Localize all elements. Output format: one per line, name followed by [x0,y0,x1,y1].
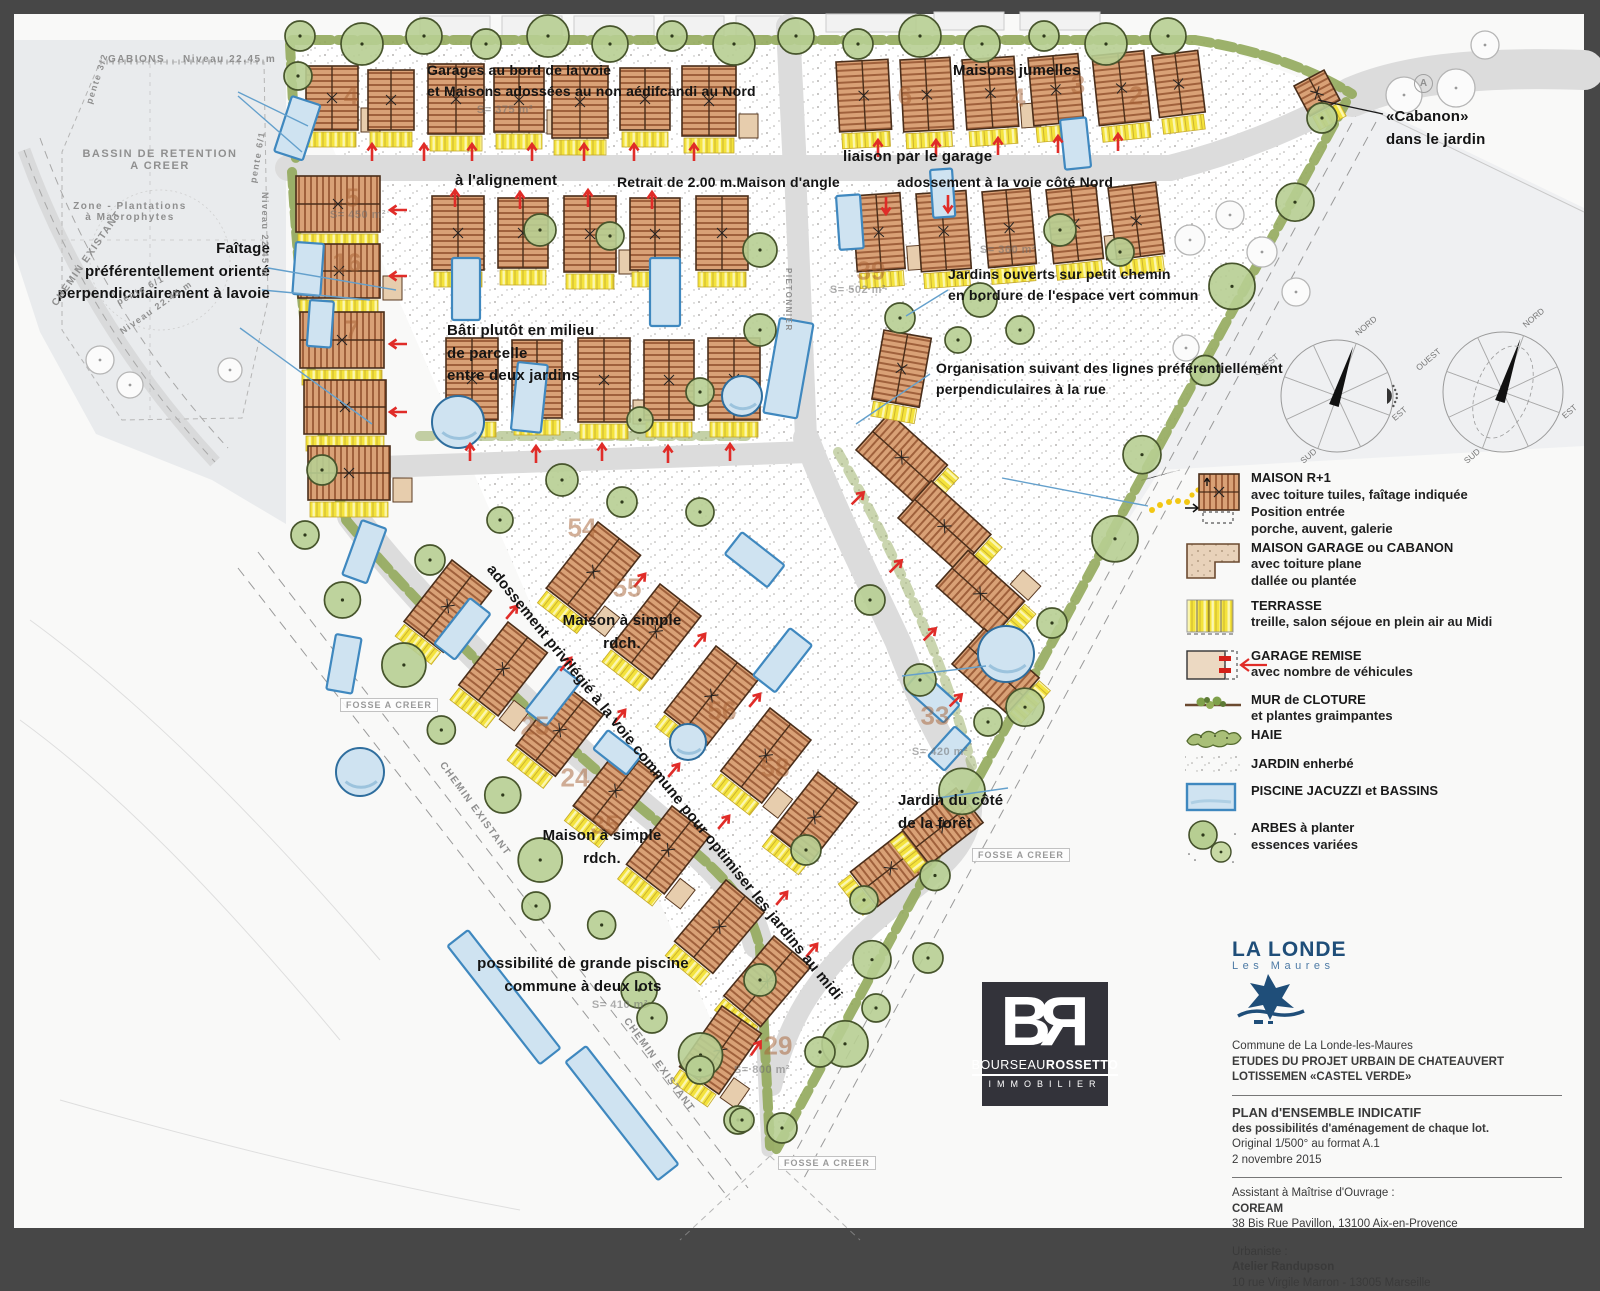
house [428,64,484,151]
tree [607,487,637,517]
tree [471,29,501,59]
tree [855,585,885,615]
tree [1029,21,1059,51]
tree [524,214,556,246]
legend-swatch-arbres-icon [1183,818,1247,873]
context-tree [1471,31,1499,59]
round-basin [722,376,762,416]
legend-text: GARAGE REMISEavec nombre de véhicules [1251,646,1413,682]
legend-title: PISCINE JACUZZI et BASSINS [1251,783,1438,800]
tree [518,838,562,882]
tree [945,327,971,353]
urbaniste-label: Urbaniste : [1232,1245,1564,1261]
plan-subtitle: des possibilités d'aménagement de chaque… [1232,1122,1564,1138]
la-londe-star-icon [1232,972,1318,1024]
pool [1060,117,1091,169]
la-londe-logo: LA LONDE Les Maures [1232,938,1564,1029]
tree [843,29,873,59]
legend-line: treille, salon séjoue en plein air au Mi… [1251,614,1492,631]
tree [487,507,513,533]
amo-label: Assistant à Maîtrise d'Ouvrage : [1232,1186,1564,1202]
tree [341,23,383,65]
tree [382,643,426,687]
legend-swatch-piscine-icon [1183,781,1247,818]
context-tree [1386,77,1422,113]
tree [406,18,442,54]
tree [1006,688,1044,726]
context-tree [1216,201,1244,229]
context-tree [1175,225,1205,255]
separator [1232,1095,1562,1096]
legend-item: MAISON R+1avec toiture tuiles, faîtage i… [1183,468,1543,538]
legend-item: MAISON GARAGE ou CABANONavec toiture pla… [1183,538,1543,596]
tree [899,15,941,57]
tree [485,777,521,813]
pool [836,194,864,250]
context-tree [117,372,143,398]
tree [791,835,821,865]
tree [964,26,1000,62]
legend-line: avec toiture plane [1251,556,1453,573]
context-tree [1173,335,1199,361]
br-name-rossetto: Rossetto [1046,1058,1119,1072]
br-monogram: B R [1000,986,1089,1058]
tree [850,886,878,914]
legend-line: avec nombre de véhicules [1251,664,1413,681]
project-line: ETUDES DU PROJET URBAIN DE CHATEAUVERT [1232,1055,1564,1071]
pool [650,258,680,326]
round-basin [432,396,484,448]
la-londe-subtitle: Les Maures [1232,960,1564,972]
pool [292,242,324,296]
legend-title: MAISON GARAGE ou CABANON [1251,540,1453,557]
br-immobilier: IMMOBILIER [988,1079,1101,1089]
house [368,70,414,147]
la-londe-title: LA LONDE [1232,938,1564,962]
tree [522,892,550,920]
legend-item: GARAGE REMISEavec nombre de véhicules [1183,646,1543,690]
house [296,176,380,249]
legend-line: et plantes graimpantes [1251,708,1393,725]
legend-title: JARDIN enherbé [1251,756,1354,773]
legend-line: essences variées [1251,837,1358,854]
legend-title: MUR de CLOTURE [1251,692,1393,709]
tree [637,1003,667,1033]
tree [904,664,936,696]
tree [713,23,755,65]
house [552,66,608,155]
tree [592,26,628,62]
tree [307,455,337,485]
legend-item: JARDIN enherbé [1183,754,1543,781]
legend-title: ARBES à planter [1251,820,1358,837]
legend-item: MUR de CLOTUREet plantes graimpantes [1183,690,1543,726]
pool [307,300,334,348]
legend-line: porche, auvent, galerie [1251,521,1468,538]
legend-title: TERRASSE [1251,598,1492,615]
legend-text: PISCINE JACUZZI et BASSINS [1251,781,1438,800]
tree [1092,516,1138,562]
tree [324,582,360,618]
tree [415,545,445,575]
house [900,57,955,148]
tree [1276,183,1314,221]
tree [1190,356,1220,386]
context-tree [218,358,242,382]
separator [1232,1177,1562,1178]
tree [1106,238,1134,266]
pool [511,362,548,433]
legend-title: GARAGE REMISE [1251,648,1413,665]
plan-screenshot: { "map": { "annotations": [ {"text":"Gar… [0,0,1600,1244]
tree [1209,263,1255,309]
tree [686,1056,714,1084]
legend-item: HAIE [1183,725,1543,754]
tree [1037,608,1067,638]
context-tree [1247,237,1277,267]
urbaniste-address: 10 rue Virgile Marron - 13005 Marseille [1232,1276,1564,1291]
tree [1085,23,1127,65]
legend-line: Position entrée [1251,504,1468,521]
legend-swatch-maison-r1-icon [1183,468,1247,531]
plan-title: PLAN d'ENSEMBLE INDICATIF [1232,1104,1564,1122]
tree [767,1113,797,1143]
house [304,380,386,451]
legend-text: HAIE [1251,725,1282,744]
br-names: BourseauRossetto [972,1058,1119,1076]
tree [1307,103,1337,133]
urbaniste-name: Atelier Randupson [1232,1260,1564,1276]
tree [527,15,569,57]
context-tree [1437,69,1475,107]
commune-line: Commune de La Londe-les-Maures [1232,1039,1564,1055]
legend-item: PISCINE JACUZZI et BASSINS [1183,781,1543,818]
tree [743,233,777,267]
tree [284,62,312,90]
br-name-bourseau: Bourseau [972,1058,1046,1072]
legend-swatch-jardin-icon [1183,754,1247,781]
tree [427,716,455,744]
tree [291,521,319,549]
tree [686,378,714,406]
legend-swatch-haie-icon [1183,725,1247,754]
legend-text: MUR de CLOTUREet plantes graimpantes [1251,690,1393,726]
round-basin [670,724,706,760]
context-tree [1282,278,1310,306]
tree [963,283,997,317]
house [696,196,748,287]
tree [920,861,950,891]
legend-item: TERRASSEtreille, salon séjoue en plein a… [1183,596,1543,646]
title-block: LA LONDE Les Maures Commune de La Londe-… [1232,938,1564,1291]
date-line: 2 novembre 2015 [1232,1153,1564,1169]
legend-swatch-maison-garage-icon [1183,538,1247,589]
tree [805,1037,835,1067]
amo-name: COREAM [1232,1202,1564,1218]
tree [744,314,776,346]
tree [744,964,776,996]
legend-title: HAIE [1251,727,1282,744]
round-basin [336,748,384,796]
legend-title: MAISON R+1 [1251,470,1468,487]
legend-swatch-terrasse-icon [1183,596,1247,643]
context-tree [86,346,114,374]
legend-text: MAISON R+1avec toiture tuiles, faîtage i… [1251,468,1468,538]
tree [1150,18,1186,54]
legend-swatch-mur-cloture-icon [1183,690,1247,721]
legend-line: dallée ou plantée [1251,573,1453,590]
legend-text: ARBES à planteressences variées [1251,818,1358,854]
pool [930,168,955,217]
legend-item: ARBES à planteressences variées [1183,818,1543,873]
legend-line: avec toiture tuiles, faîtage indiquée [1251,487,1468,504]
bourseau-rossetto-logo: B R BourseauRossetto IMMOBILIER [984,984,1106,1104]
round-basin [978,626,1034,682]
tree [778,18,814,54]
tree [939,768,985,814]
tree [1006,316,1034,344]
house [620,68,670,147]
tree [730,1108,754,1132]
tree [913,943,943,973]
tree [974,708,1002,736]
tree [1044,214,1076,246]
legend-text: JARDIN enherbé [1251,754,1354,773]
tree [853,941,891,979]
tree [885,303,915,333]
tree [285,21,315,51]
tree [862,994,890,1022]
lotissement-line: LOTISSEMEN «CASTEL VERDE» [1232,1070,1564,1086]
tree [1123,436,1161,474]
tree [686,498,714,526]
br-letter-r-mirrored: R [1039,986,1090,1056]
tree [588,911,616,939]
tree [596,222,624,250]
pool [452,258,480,320]
legend-text: TERRASSEtreille, salon séjoue en plein a… [1251,596,1492,632]
tree [546,464,578,496]
legend: MAISON R+1avec toiture tuiles, faîtage i… [1183,468,1543,873]
tree [627,407,653,433]
legend-text: MAISON GARAGE ou CABANONavec toiture pla… [1251,538,1453,591]
legend-swatch-garage-remise-icon [1183,646,1247,689]
house [836,59,892,149]
amo-address: 38 Bis Rue Pavillon, 13100 Aix-en-Proven… [1232,1217,1564,1233]
tree [657,21,687,51]
scale-line: Original 1/500° au format A.1 [1232,1137,1564,1153]
